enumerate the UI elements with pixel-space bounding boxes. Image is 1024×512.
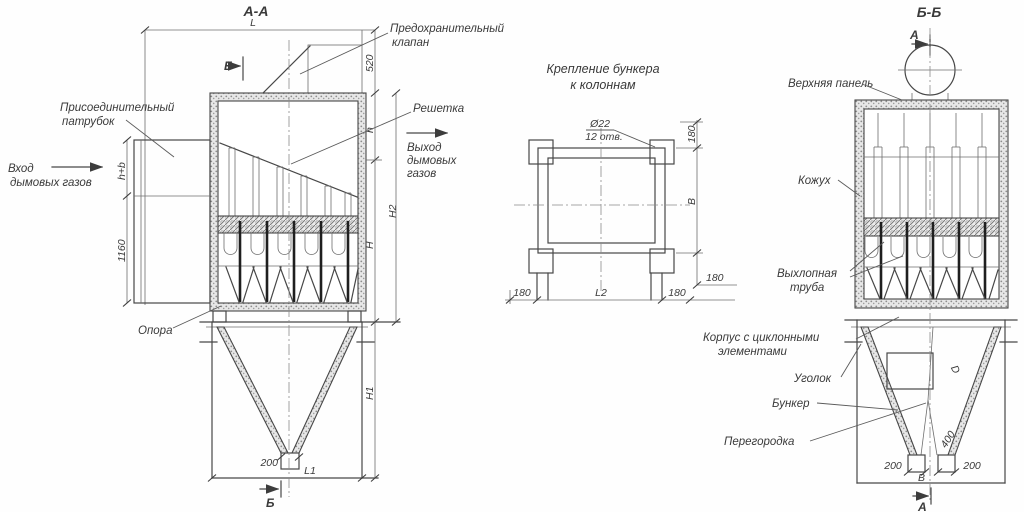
dim-H2: Н2 bbox=[387, 204, 399, 218]
bunker-mount-view: Крепление бункера к колоннам Ø22 12 отв. bbox=[505, 62, 737, 304]
partition-bb bbox=[921, 327, 937, 455]
dim-180-top: 180 bbox=[686, 125, 698, 143]
label-outlet-line1: Выход bbox=[407, 142, 442, 154]
dim-L1: L1 bbox=[304, 465, 316, 477]
label-inlet-line2: дымовых газов bbox=[10, 177, 92, 189]
svg-text:Б: Б bbox=[266, 496, 275, 510]
dim-180-bottom: 180 bbox=[668, 287, 686, 299]
mount-frame-outer bbox=[538, 148, 665, 253]
section-marker-b-bottom: Б bbox=[260, 481, 281, 510]
section-marker-a-top: А bbox=[909, 28, 930, 55]
section-bb-title: Б-Б bbox=[917, 4, 942, 20]
dim-H1: Н1 bbox=[364, 387, 376, 400]
label-exhaust-pipe-line2: труба bbox=[790, 282, 824, 294]
dim-B-mount: В bbox=[686, 198, 698, 205]
holes-diameter-note: Ø22 bbox=[589, 118, 610, 130]
section-aa-view: А-А L 520 h Н2 Н Н1 Б bbox=[8, 3, 505, 510]
label-bunker: Бункер bbox=[772, 398, 810, 410]
label-top-panel: Верхняя панель bbox=[788, 78, 873, 90]
label-safety-valve-line1: Предохранительный bbox=[390, 23, 505, 35]
holes-count-note: 12 отв. bbox=[585, 131, 623, 143]
label-angle: Уголок bbox=[793, 373, 832, 385]
section-bb-view: Б-Б А bbox=[703, 4, 1017, 512]
flue-gas-inlet: Вход дымовых газов bbox=[8, 163, 102, 189]
label-body-line2: элементами bbox=[718, 346, 787, 358]
safety-valve bbox=[263, 30, 362, 93]
support-leg-left bbox=[213, 311, 226, 322]
bunker-mount-title-line2: к колоннам bbox=[570, 78, 636, 92]
label-partition: Перегородка bbox=[724, 436, 794, 448]
mount-frame-inner bbox=[548, 158, 655, 243]
section-marker-a-bottom: А bbox=[913, 488, 931, 512]
label-connecting-pipe-line2: патрубок bbox=[62, 116, 115, 128]
dim-B-bottom: В bbox=[918, 472, 925, 484]
dim-180-left: 180 bbox=[513, 287, 531, 299]
dim-L2: L2 bbox=[595, 287, 607, 299]
casing-interior-bb bbox=[864, 109, 999, 299]
dim-1160: 1160 bbox=[116, 239, 128, 262]
hopper-aa bbox=[200, 322, 400, 482]
bunker-mount-title-line1: Крепление бункера bbox=[546, 62, 659, 76]
label-inlet-line1: Вход bbox=[8, 163, 34, 175]
technical-drawing-page: А-А L 520 h Н2 Н Н1 Б bbox=[0, 0, 1024, 512]
label-safety-valve-line2: клапан bbox=[392, 37, 430, 49]
access-door bbox=[887, 353, 933, 389]
dim-L: L bbox=[250, 17, 256, 29]
section-marker-b-top: Б bbox=[224, 57, 243, 80]
label-outlet-line2: дымовых bbox=[407, 155, 458, 167]
dim-200-outlet: 200 bbox=[259, 457, 278, 469]
dim-200-right: 200 bbox=[962, 460, 981, 472]
dim-200-left: 200 bbox=[883, 460, 902, 472]
dim-180-right: 180 bbox=[706, 272, 724, 284]
label-body-line1: Корпус с циклонными bbox=[703, 332, 820, 344]
label-casing: Кожух bbox=[798, 175, 832, 187]
label-support: Опора bbox=[138, 325, 172, 337]
dim-h-plus-b: h+b bbox=[116, 162, 128, 180]
label-grate: Решетка bbox=[413, 103, 464, 115]
label-connecting-pipe-line1: Присоединительный bbox=[60, 102, 175, 114]
svg-text:А: А bbox=[917, 500, 927, 512]
label-outlet-line3: газов bbox=[407, 168, 436, 180]
svg-text:А: А bbox=[909, 28, 919, 42]
support-leg-right bbox=[348, 311, 361, 322]
tube-grid-bb bbox=[864, 218, 999, 236]
hopper-bb bbox=[845, 320, 1017, 483]
flue-gas-outlet: Выход дымовых газов bbox=[366, 133, 458, 180]
dim-520: 520 bbox=[364, 54, 376, 72]
label-exhaust-pipe-line1: Выхлопная bbox=[777, 268, 837, 280]
dim-D-slope: D bbox=[948, 363, 962, 376]
cyclone-dust-collector-drawing: А-А L 520 h Н2 Н Н1 Б bbox=[0, 0, 1024, 512]
